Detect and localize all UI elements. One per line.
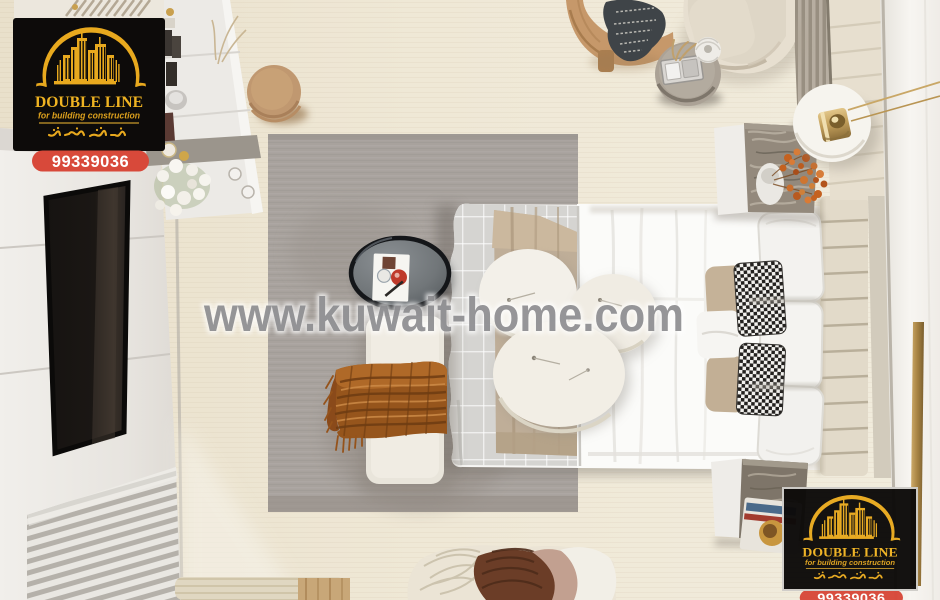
svg-text:www.kuwait-home.com: www.kuwait-home.com [203, 289, 684, 342]
